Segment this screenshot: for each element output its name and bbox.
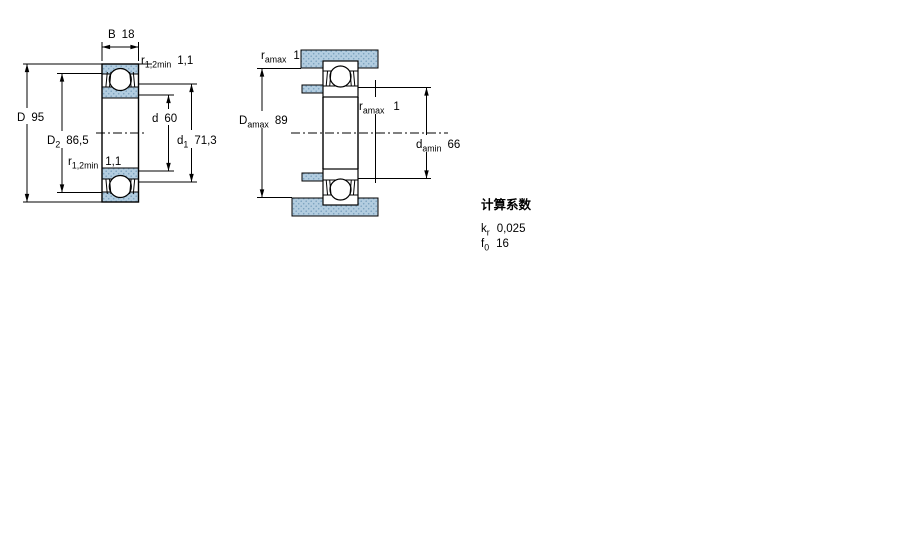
shaft-shoulder-bottom <box>302 173 323 181</box>
ball-bottom <box>109 176 131 198</box>
canvas-background <box>0 0 900 560</box>
ball-top <box>109 69 131 91</box>
ball-bottom <box>330 179 351 200</box>
dim-label: B18 <box>108 29 134 41</box>
shaft-shoulder-top <box>302 85 323 93</box>
bearing-drawing-svg: B18 r1,2min1,1 D95 D286,5 r1,2min1,1 <box>0 0 900 560</box>
factors-title: 计算系数 <box>481 197 532 212</box>
dim-label: d60 <box>152 113 177 125</box>
technical-drawing-page: B18 r1,2min1,1 D95 D286,5 r1,2min1,1 <box>0 0 900 560</box>
dim-label: D95 <box>17 112 44 124</box>
ball-top <box>330 66 351 87</box>
